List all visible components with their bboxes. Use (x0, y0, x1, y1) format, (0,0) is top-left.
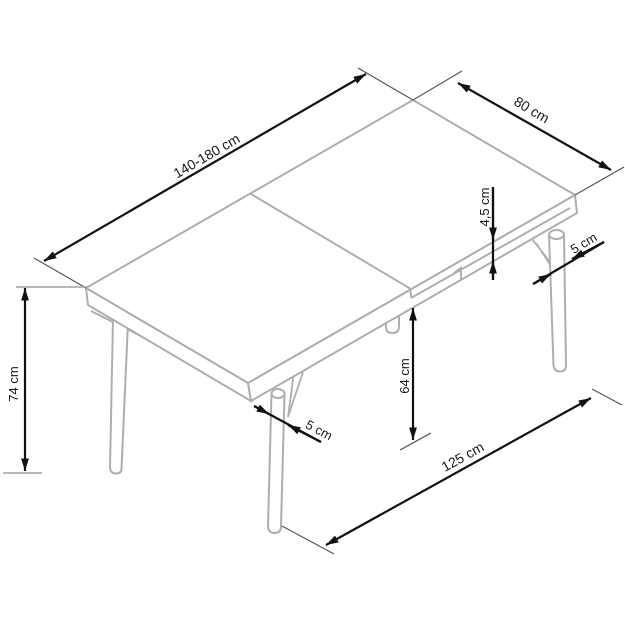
svg-text:80 cm: 80 cm (511, 93, 552, 126)
svg-text:4,5 cm: 4,5 cm (477, 187, 492, 226)
svg-text:140-180 cm: 140-180 cm (171, 130, 243, 181)
svg-text:64 cm: 64 cm (397, 358, 412, 393)
svg-text:5 cm: 5 cm (303, 417, 335, 443)
svg-text:74 cm: 74 cm (6, 366, 21, 401)
